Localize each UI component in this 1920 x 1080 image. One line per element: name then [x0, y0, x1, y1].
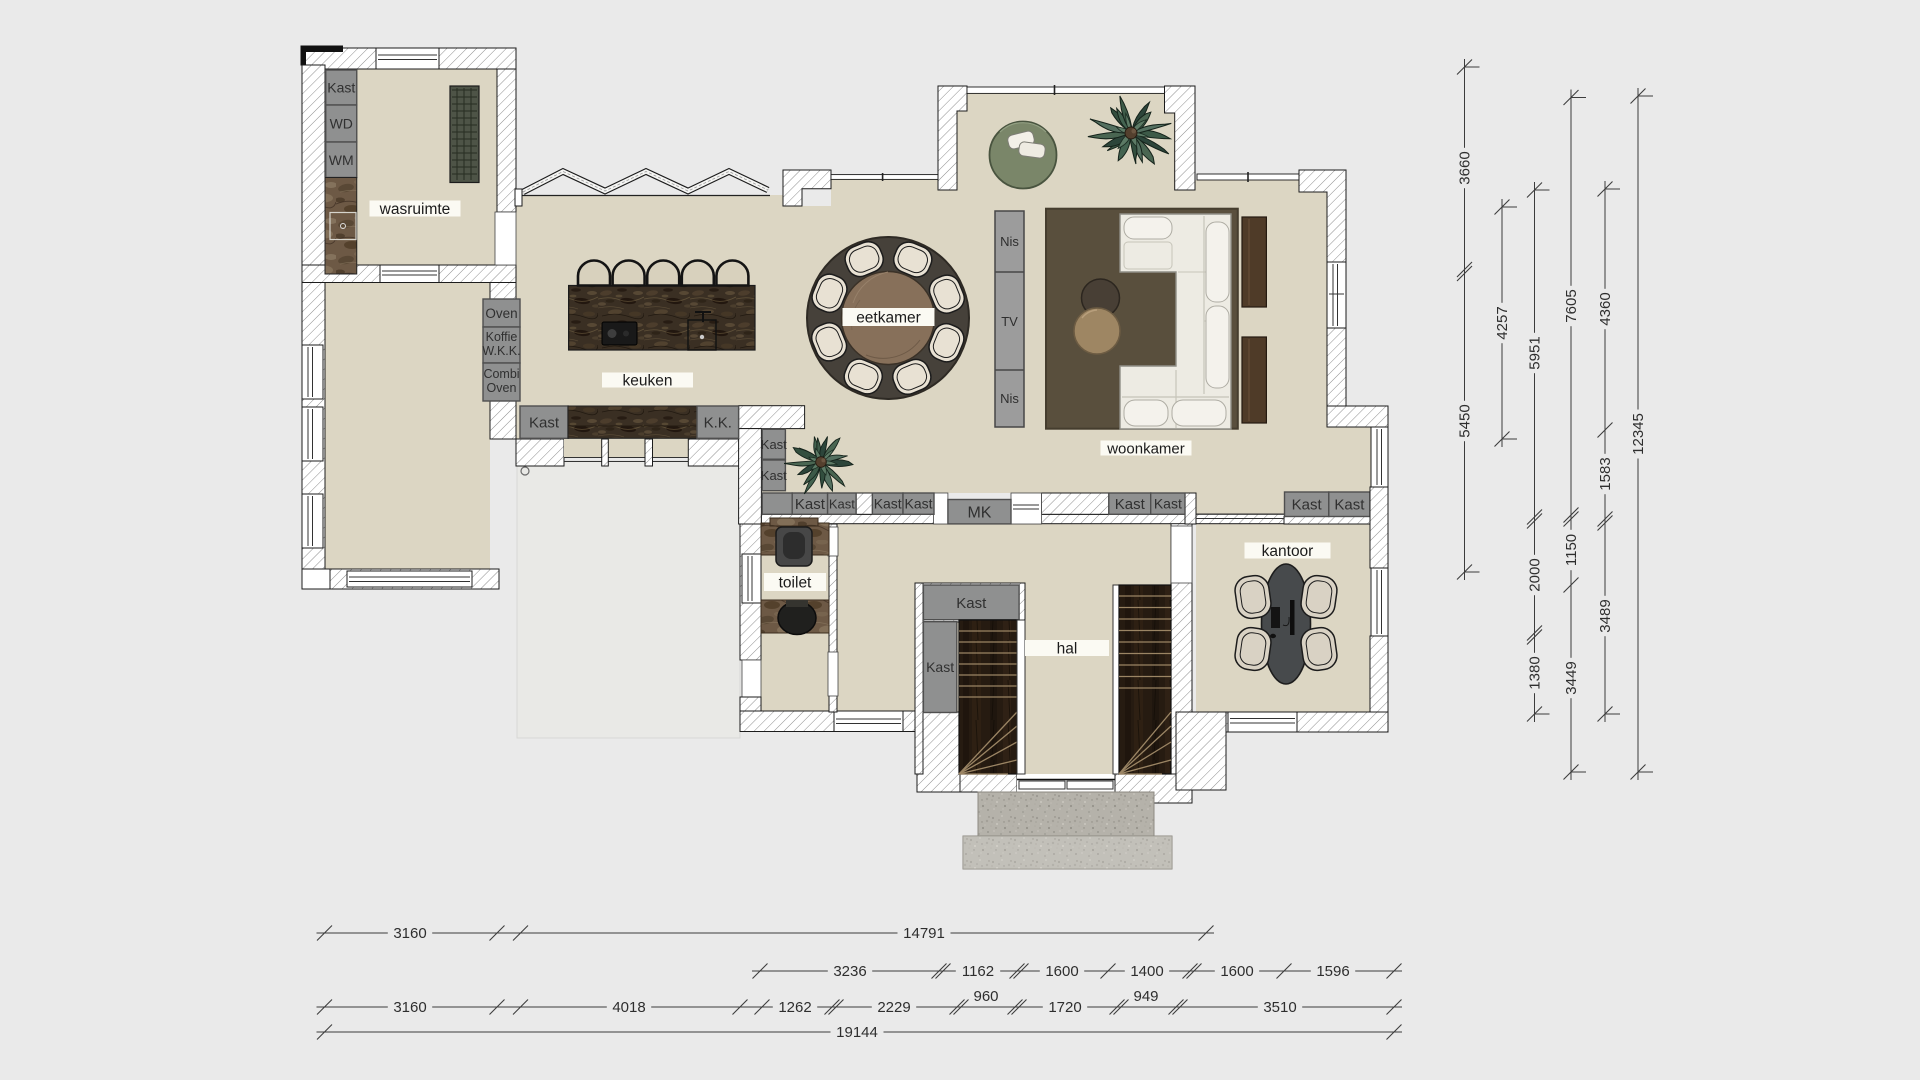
svg-text:1380: 1380 — [1527, 656, 1544, 689]
svg-text:1400: 1400 — [1130, 963, 1163, 980]
svg-text:TV: TV — [1001, 314, 1018, 329]
svg-text:3160: 3160 — [393, 925, 426, 942]
svg-text:eetkamer: eetkamer — [856, 309, 921, 326]
svg-text:3160: 3160 — [393, 999, 426, 1016]
svg-text:Combi: Combi — [483, 367, 519, 381]
svg-text:hal: hal — [1057, 640, 1078, 657]
svg-text:1600: 1600 — [1220, 963, 1253, 980]
svg-text:Kast: Kast — [956, 595, 987, 612]
svg-text:1596: 1596 — [1316, 963, 1349, 980]
svg-text:WD: WD — [330, 116, 353, 132]
svg-text:1720: 1720 — [1048, 999, 1081, 1016]
svg-text:3449: 3449 — [1563, 661, 1580, 694]
svg-text:WM: WM — [329, 152, 354, 168]
svg-text:Kast: Kast — [327, 80, 355, 96]
svg-text:wasruimte: wasruimte — [379, 201, 451, 218]
svg-text:3660: 3660 — [1457, 151, 1474, 184]
svg-text:Kast: Kast — [795, 496, 826, 513]
svg-text:Koffie: Koffie — [486, 330, 518, 344]
svg-text:4018: 4018 — [612, 999, 645, 1016]
svg-text:7605: 7605 — [1563, 289, 1580, 322]
svg-text:1262: 1262 — [778, 999, 811, 1016]
svg-text:Kast: Kast — [1154, 496, 1182, 512]
svg-text:3510: 3510 — [1263, 999, 1296, 1016]
svg-text:MK: MK — [967, 504, 991, 521]
svg-text:Kast: Kast — [1334, 497, 1365, 514]
svg-text:1150: 1150 — [1563, 534, 1580, 566]
svg-text:Kast: Kast — [529, 415, 560, 432]
svg-text:K.K.: K.K. — [704, 415, 732, 432]
svg-text:2000: 2000 — [1527, 558, 1544, 591]
svg-text:Kast: Kast — [761, 437, 787, 452]
svg-text:keuken: keuken — [623, 372, 673, 389]
svg-text:Kast: Kast — [829, 496, 855, 511]
svg-text:1600: 1600 — [1045, 963, 1078, 980]
svg-text:toilet: toilet — [779, 574, 812, 591]
svg-text:woonkamer: woonkamer — [1106, 440, 1185, 457]
svg-text:Nis: Nis — [1000, 234, 1019, 249]
svg-text:1162: 1162 — [962, 963, 994, 980]
svg-text:Kast: Kast — [1292, 497, 1323, 514]
svg-text:3489: 3489 — [1597, 599, 1614, 632]
svg-text:949: 949 — [1133, 988, 1158, 1005]
svg-text:Nis: Nis — [1000, 391, 1019, 406]
svg-text:3236: 3236 — [833, 963, 866, 980]
svg-text:W.K.K.: W.K.K. — [482, 344, 520, 358]
svg-text:1583: 1583 — [1597, 457, 1614, 490]
svg-text:Kast: Kast — [904, 496, 932, 512]
svg-text:14791: 14791 — [903, 925, 945, 942]
svg-text:Oven: Oven — [487, 381, 517, 395]
svg-text:Kast: Kast — [926, 659, 954, 675]
svg-text:19144: 19144 — [836, 1024, 878, 1041]
svg-text:4257: 4257 — [1494, 306, 1511, 339]
svg-text:Kast: Kast — [874, 496, 902, 512]
svg-text:4360: 4360 — [1597, 292, 1614, 325]
svg-text:5951: 5951 — [1527, 336, 1544, 369]
svg-text:12345: 12345 — [1630, 413, 1647, 455]
svg-text:960: 960 — [973, 988, 998, 1005]
svg-text:Oven: Oven — [485, 306, 517, 321]
svg-text:2229: 2229 — [877, 999, 910, 1016]
svg-text:Kast: Kast — [1115, 496, 1146, 513]
svg-text:Kast: Kast — [761, 468, 787, 483]
svg-text:5450: 5450 — [1457, 404, 1474, 437]
svg-text:kantoor: kantoor — [1262, 543, 1314, 560]
